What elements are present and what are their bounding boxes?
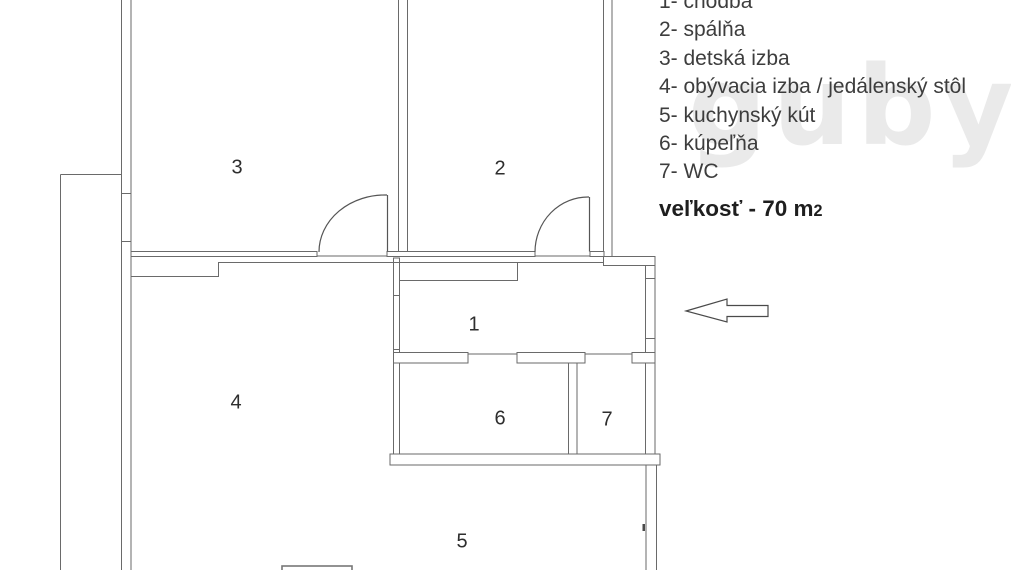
wall-left <box>122 0 132 570</box>
room4-top-step <box>132 263 604 277</box>
entrance-arrow-icon <box>686 299 768 322</box>
room-label-kids-room: 3 <box>231 157 242 180</box>
wall-room2-right <box>604 0 613 258</box>
legend-item-kitchen: 5- kuchynský kút <box>659 102 966 130</box>
door3-arc <box>319 195 387 252</box>
legend-item-living-room: 4- obývacia izba / jedálenský stôl <box>659 73 966 101</box>
size-note: veľkosť - 70 m2 <box>659 196 823 222</box>
thin-lines <box>61 175 656 570</box>
walls <box>122 0 661 570</box>
legend-item-bathroom: 6- kúpeľňa <box>659 130 966 158</box>
hall-notch <box>400 263 518 281</box>
legend: 1- chodba 2- spálňa 3- detská izba 4- ob… <box>659 0 966 187</box>
kitchen-counter <box>282 566 352 570</box>
size-exponent: 2 <box>814 202 823 220</box>
wall-entrance-right <box>646 266 656 466</box>
wall-bath-wc <box>569 363 578 454</box>
legend-item-bedroom: 2- spálňa <box>659 16 966 44</box>
legend-item-kids-room: 3- detská izba <box>659 45 966 73</box>
wall-mark <box>643 524 646 531</box>
room-label-hallway: 1 <box>468 314 479 337</box>
wall-room3-bottom <box>131 252 317 257</box>
room-label-kitchen: 5 <box>456 531 467 554</box>
room-label-living-room: 4 <box>230 392 241 415</box>
door2-arc <box>535 197 589 252</box>
room-label-bedroom: 2 <box>494 158 505 181</box>
wall-bath-bottom <box>390 454 660 465</box>
legend-item-wc: 7- WC <box>659 158 966 186</box>
room-label-wc: 7 <box>601 409 612 432</box>
wall-room2-bottom-a <box>387 252 535 257</box>
floor-plan-page: guby® <box>0 0 1011 570</box>
wall-hall-bottom-c <box>632 353 655 364</box>
wall-hall-bottom-b <box>517 353 585 364</box>
wall-step-top-right <box>604 257 656 266</box>
wall-room2-bottom-b <box>590 252 604 257</box>
legend-item-hallway: 1- chodba <box>659 0 966 16</box>
wall-hall-bottom-a <box>394 353 469 364</box>
wall-kitchen-right <box>646 465 657 570</box>
room-label-bathroom: 6 <box>494 408 505 431</box>
doors <box>319 195 590 252</box>
wall-room3-room2 <box>399 0 408 256</box>
